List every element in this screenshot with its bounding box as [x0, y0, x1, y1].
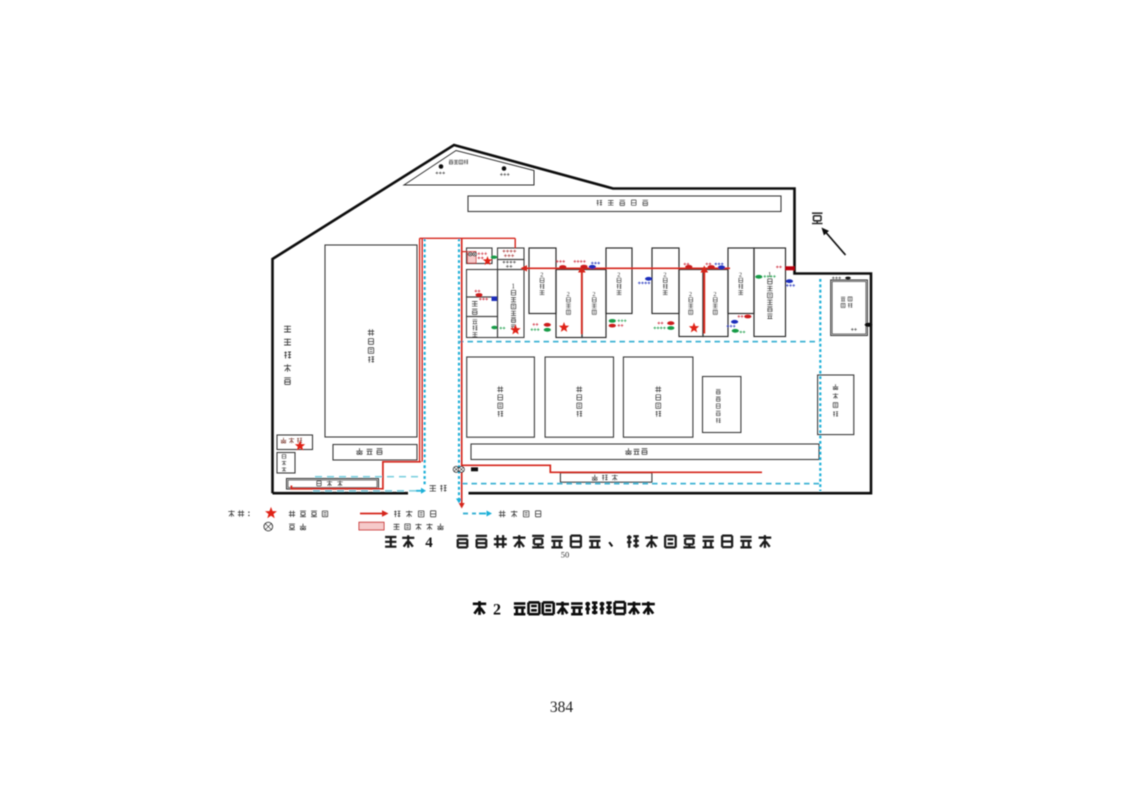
- svg-text:2: 2: [592, 291, 595, 298]
- svg-text:2: 2: [689, 291, 692, 298]
- svg-text:4: 4: [425, 535, 433, 551]
- svg-text:2: 2: [617, 272, 620, 279]
- svg-text:50: 50: [561, 550, 570, 560]
- svg-text:2: 2: [493, 602, 501, 619]
- svg-text:2: 2: [663, 272, 666, 279]
- svg-text:2: 2: [713, 291, 716, 298]
- svg-text:2: 2: [540, 272, 543, 279]
- svg-text:2: 2: [739, 272, 742, 279]
- svg-text:1: 1: [511, 284, 515, 291]
- svg-text:2: 2: [567, 291, 570, 298]
- svg-text:384: 384: [550, 699, 574, 716]
